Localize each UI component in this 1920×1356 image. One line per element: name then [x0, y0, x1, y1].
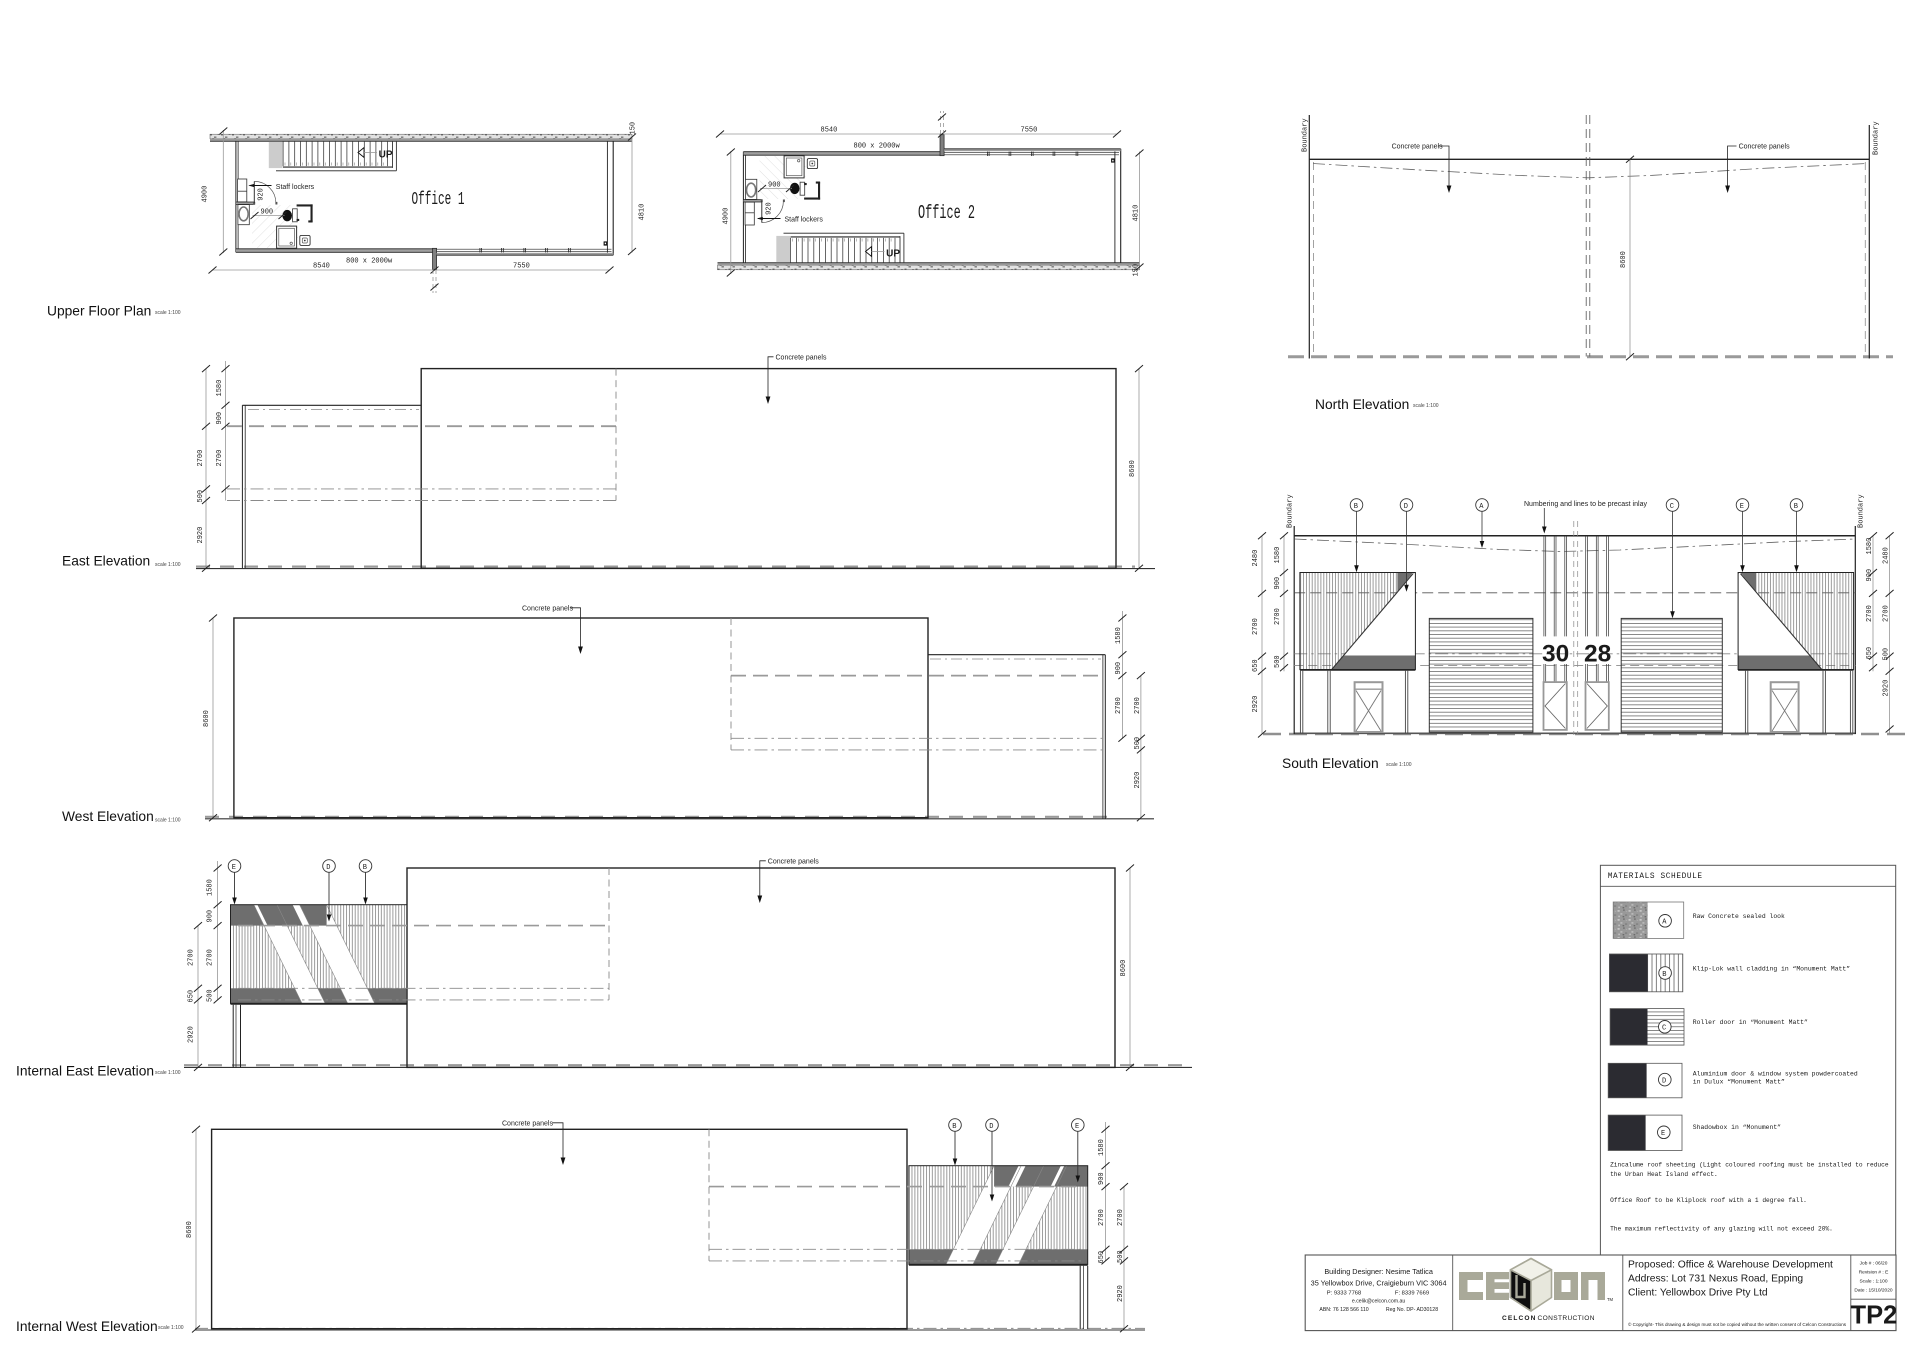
svg-text:Upper Floor Plan: Upper Floor Plan	[47, 304, 151, 319]
svg-text:Boundary: Boundary	[1873, 121, 1881, 155]
svg-text:scale 1:100: scale 1:100	[155, 562, 181, 568]
svg-text:2920: 2920	[197, 527, 205, 544]
svg-text:Klip-Lok wall cladding in “Mon: Klip-Lok wall cladding in “Monument Matt…	[1693, 966, 1850, 973]
svg-text:8540: 8540	[313, 262, 330, 270]
svg-text:4900: 4900	[202, 186, 210, 203]
svg-text:8540: 8540	[821, 126, 838, 134]
svg-text:F: 8339 7669: F: 8339 7669	[1395, 1291, 1429, 1297]
svg-text:B: B	[363, 864, 367, 872]
svg-text:Date : 15/10/2020: Date : 15/10/2020	[1854, 1288, 1892, 1294]
svg-text:150: 150	[1132, 264, 1140, 277]
svg-text:2700: 2700	[1117, 1209, 1125, 1226]
svg-text:ABN: 76 128 566 110: ABN: 76 128 566 110	[1319, 1307, 1368, 1313]
svg-text:800 x 2000w: 800 x 2000w	[346, 257, 393, 265]
svg-text:Aluminium door & window system: Aluminium door & window system powdercoa…	[1693, 1071, 1858, 1078]
svg-text:TM: TM	[1607, 1297, 1614, 1302]
svg-text:UP: UP	[886, 248, 900, 259]
svg-text:CONSTRUCTION: CONSTRUCTION	[1538, 1315, 1595, 1322]
svg-text:2700: 2700	[1883, 605, 1891, 622]
svg-text:1580: 1580	[1274, 547, 1282, 564]
svg-text:scale 1:100: scale 1:100	[1413, 403, 1439, 409]
svg-text:scale 1:100: scale 1:100	[155, 1070, 181, 1076]
svg-text:Concrete panels: Concrete panels	[522, 606, 573, 613]
svg-text:650: 650	[1098, 1251, 1106, 1264]
svg-text:650: 650	[1866, 647, 1874, 660]
svg-text:1580: 1580	[207, 879, 215, 896]
svg-text:28: 28	[1584, 641, 1611, 668]
svg-text:Client: Yellowbox Drive Pty Lt: Client: Yellowbox Drive Pty Ltd	[1628, 1288, 1768, 1299]
svg-text:Internal West Elevation: Internal West Elevation	[16, 1319, 158, 1334]
svg-text:D: D	[1662, 1077, 1666, 1085]
svg-text:scale 1:100: scale 1:100	[1386, 762, 1412, 768]
svg-text:Office 2: Office 2	[918, 202, 975, 224]
svg-text:150: 150	[630, 122, 638, 135]
svg-text:Concrete panels: Concrete panels	[776, 355, 827, 362]
svg-text:2700: 2700	[1252, 618, 1260, 635]
svg-text:e.celik@celcon.com.au: e.celik@celcon.com.au	[1352, 1299, 1406, 1305]
svg-text:Office Roof to be Kliplock roo: Office Roof to be Kliplock roof with a 1…	[1610, 1197, 1807, 1204]
svg-text:2480: 2480	[1252, 550, 1260, 567]
svg-text:920: 920	[765, 202, 773, 215]
svg-text:650: 650	[1252, 659, 1260, 672]
svg-text:7550: 7550	[513, 262, 530, 270]
svg-text:30: 30	[1542, 641, 1569, 668]
svg-text:B: B	[1662, 971, 1666, 979]
svg-text:© Copyright- This drawing & de: © Copyright- This drawing & design must …	[1628, 1321, 1847, 1327]
svg-text:2920: 2920	[1883, 680, 1891, 697]
svg-text:920: 920	[257, 188, 265, 201]
svg-text:8600: 8600	[1129, 460, 1137, 477]
svg-text:Roller door in “Monument Matt”: Roller door in “Monument Matt”	[1693, 1019, 1808, 1026]
svg-text:Internal East Elevation: Internal East Elevation	[16, 1064, 154, 1079]
svg-text:2700: 2700	[1115, 697, 1123, 714]
svg-text:500: 500	[1274, 655, 1282, 668]
svg-text:1580: 1580	[1115, 627, 1123, 644]
svg-text:500: 500	[197, 490, 205, 503]
svg-text:2480: 2480	[1883, 547, 1891, 564]
svg-text:2700: 2700	[216, 450, 224, 467]
svg-text:8600: 8600	[1620, 251, 1628, 268]
svg-text:The maximum reflectivity of an: The maximum reflectivity of any glazing …	[1610, 1226, 1833, 1233]
svg-text:2920: 2920	[1252, 696, 1260, 713]
svg-text:2700: 2700	[188, 949, 196, 966]
svg-text:2700: 2700	[207, 949, 215, 966]
svg-text:2700: 2700	[197, 450, 205, 467]
svg-text:2700: 2700	[1274, 608, 1282, 625]
svg-text:East Elevation: East Elevation	[62, 554, 150, 569]
svg-text:Concrete panels: Concrete panels	[1739, 144, 1790, 151]
svg-text:scale 1:100: scale 1:100	[155, 310, 181, 316]
svg-text:900: 900	[1115, 662, 1123, 675]
svg-text:Building Designer: Nesime Tatl: Building Designer: Nesime Tatlica	[1324, 1267, 1434, 1276]
svg-text:800 x 2000w: 800 x 2000w	[854, 142, 901, 150]
svg-text:Concrete panels: Concrete panels	[502, 1121, 553, 1128]
svg-text:B: B	[1794, 503, 1798, 511]
svg-text:Job # : 06/20: Job # : 06/20	[1860, 1261, 1888, 1267]
svg-text:Staff lockers: Staff lockers	[785, 217, 824, 224]
svg-text:Address: Lot 731 Nexus Road, E: Address: Lot 731 Nexus Road, Epping	[1628, 1274, 1803, 1285]
svg-text:Zincalume roof sheeting (Light: Zincalume roof sheeting (Light coloured …	[1610, 1162, 1889, 1169]
svg-text:2920: 2920	[1134, 772, 1142, 789]
svg-text:650: 650	[188, 990, 196, 1003]
svg-text:1580: 1580	[216, 380, 224, 397]
svg-text:D: D	[326, 864, 330, 872]
svg-text:Concrete panels: Concrete panels	[1392, 144, 1443, 151]
svg-text:500: 500	[1883, 648, 1891, 661]
svg-text:900: 900	[1866, 569, 1874, 582]
svg-text:7550: 7550	[1021, 126, 1038, 134]
svg-text:Office 1: Office 1	[412, 190, 465, 210]
svg-text:Scale : 1:100: Scale : 1:100	[1859, 1279, 1887, 1285]
svg-text:Staff lockers: Staff lockers	[276, 184, 315, 191]
svg-text:35 Yellowbox Drive, Craigiebur: 35 Yellowbox Drive, Craigieburn VIC 3064	[1311, 1279, 1447, 1288]
svg-text:Reg No. DP- AD30128: Reg No. DP- AD30128	[1386, 1307, 1438, 1313]
svg-text:8600: 8600	[203, 710, 211, 727]
svg-text:4810: 4810	[639, 204, 647, 221]
svg-text:1580: 1580	[1866, 538, 1874, 555]
svg-text:B: B	[1354, 503, 1358, 511]
svg-text:UP: UP	[379, 149, 393, 160]
svg-text:4900: 4900	[722, 208, 730, 225]
svg-text:Boundary: Boundary	[1858, 494, 1866, 528]
svg-text:900: 900	[768, 182, 781, 190]
svg-text:4810: 4810	[1132, 205, 1140, 222]
svg-text:2920: 2920	[1117, 1285, 1125, 1302]
svg-text:in Dulux “Monument Matt”: in Dulux “Monument Matt”	[1693, 1079, 1785, 1086]
svg-text:1580: 1580	[1098, 1139, 1106, 1156]
svg-text:900: 900	[216, 412, 224, 425]
svg-text:Shadowbox in “Monument”: Shadowbox in “Monument”	[1693, 1124, 1781, 1131]
svg-text:scale 1:100: scale 1:100	[158, 1325, 184, 1331]
svg-text:South Elevation: South Elevation	[1282, 756, 1379, 771]
svg-text:CELCON: CELCON	[1502, 1315, 1536, 1322]
svg-text:900: 900	[1098, 1172, 1106, 1185]
svg-text:2920: 2920	[188, 1026, 196, 1043]
svg-text:2700: 2700	[1098, 1209, 1106, 1226]
svg-text:8600: 8600	[1120, 960, 1128, 977]
svg-text:D: D	[989, 1123, 993, 1131]
svg-text:900: 900	[207, 910, 215, 923]
svg-text:P: 9333 7768: P: 9333 7768	[1327, 1291, 1362, 1297]
svg-text:Revision # : E: Revision # : E	[1859, 1270, 1889, 1276]
svg-text:500: 500	[207, 989, 215, 1002]
svg-text:E: E	[1740, 503, 1744, 511]
svg-text:Boundary: Boundary	[1302, 118, 1310, 152]
svg-text:E: E	[1075, 1123, 1079, 1131]
svg-text:B: B	[952, 1123, 956, 1131]
svg-text:500: 500	[1134, 737, 1142, 750]
svg-text:900: 900	[261, 209, 274, 217]
svg-text:West Elevation: West Elevation	[62, 809, 154, 824]
svg-text:C: C	[1670, 503, 1674, 511]
svg-text:2700: 2700	[1134, 697, 1142, 714]
svg-text:E: E	[232, 864, 236, 872]
svg-text:TP2: TP2	[1851, 1302, 1898, 1330]
svg-text:E: E	[1661, 1130, 1665, 1138]
svg-text:8600: 8600	[186, 1221, 194, 1238]
svg-text:500: 500	[1117, 1250, 1125, 1263]
svg-text:scale 1:100: scale 1:100	[155, 818, 181, 824]
svg-text:Boundary: Boundary	[1287, 494, 1295, 528]
svg-text:the Urban Heat Island effect.: the Urban Heat Island effect.	[1610, 1171, 1718, 1178]
svg-text:2700: 2700	[1866, 605, 1874, 622]
svg-text:MATERIALS SCHEDULE: MATERIALS SCHEDULE	[1608, 873, 1703, 881]
svg-text:Concrete panels: Concrete panels	[768, 859, 819, 866]
svg-text:Numbering and lines to be prec: Numbering and lines to be precast inlay	[1524, 501, 1647, 508]
svg-text:D: D	[1404, 503, 1408, 511]
svg-text:Raw Concrete sealed look: Raw Concrete sealed look	[1693, 913, 1785, 920]
svg-text:North Elevation: North Elevation	[1315, 397, 1409, 412]
svg-text:Proposed: Office & Warehouse D: Proposed: Office & Warehouse Development	[1628, 1260, 1833, 1271]
svg-text:900: 900	[1274, 577, 1282, 590]
svg-text:C: C	[1662, 1025, 1666, 1033]
